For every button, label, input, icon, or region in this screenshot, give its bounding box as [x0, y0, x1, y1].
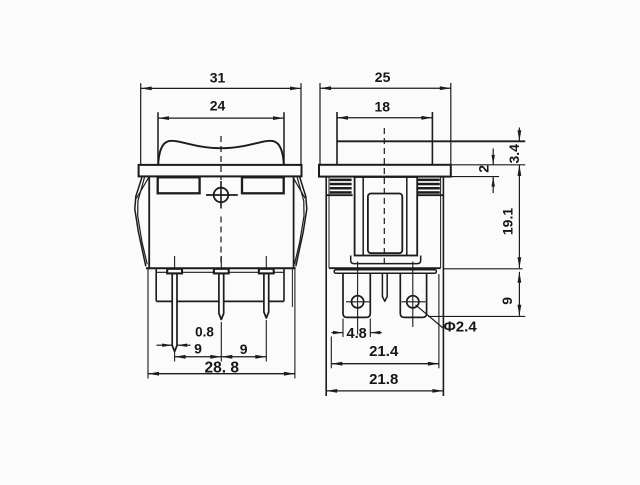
svg-text:25: 25: [375, 69, 391, 85]
svg-text:18: 18: [375, 99, 391, 115]
svg-text:9: 9: [194, 341, 202, 357]
svg-text:21.4: 21.4: [369, 343, 399, 360]
svg-text:0.8: 0.8: [195, 324, 214, 339]
svg-text:9: 9: [240, 341, 248, 357]
svg-text:9: 9: [499, 297, 515, 305]
svg-text:21.8: 21.8: [369, 371, 398, 388]
svg-text:3.4: 3.4: [506, 144, 522, 164]
svg-text:24: 24: [210, 98, 226, 114]
svg-text:Φ2.4: Φ2.4: [444, 319, 478, 336]
svg-text:4.8: 4.8: [347, 326, 367, 342]
svg-text:19.1: 19.1: [499, 208, 515, 235]
svg-text:2: 2: [475, 165, 491, 173]
svg-text:31: 31: [210, 69, 226, 85]
